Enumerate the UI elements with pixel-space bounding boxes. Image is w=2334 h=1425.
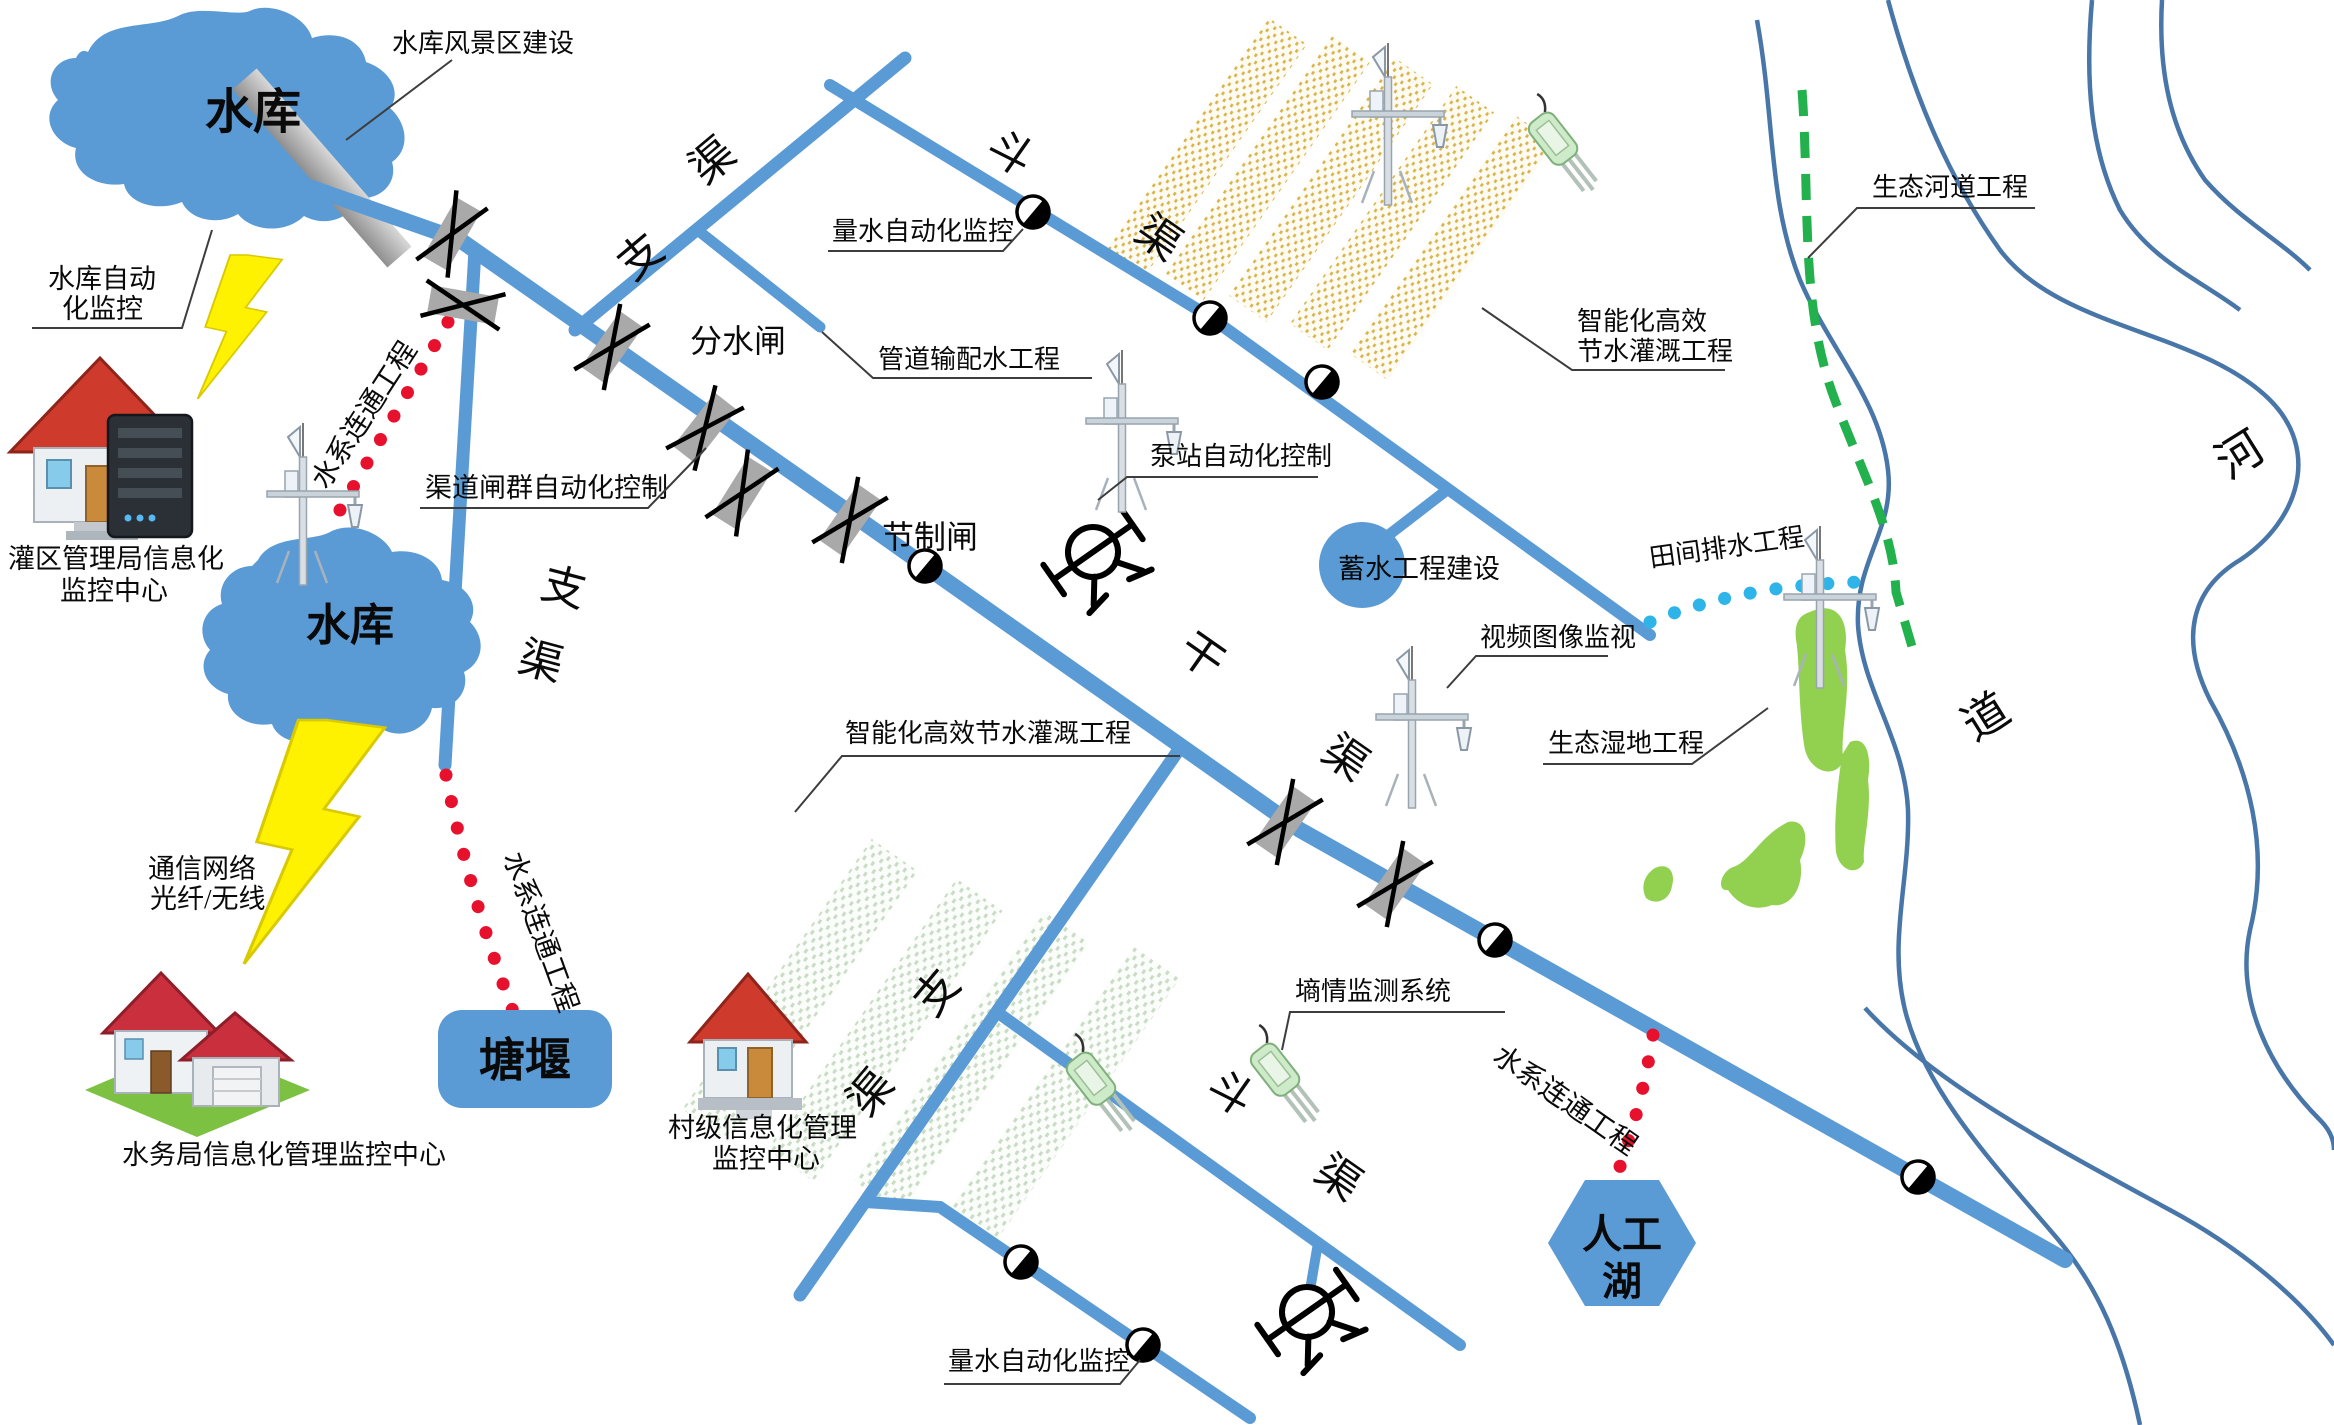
pipeline-label: 管道输配水工程 (878, 345, 1060, 374)
eco-river-label: 生态河道工程 (1872, 173, 2028, 202)
wireless-bolt-bottom (244, 720, 385, 964)
measure-label-2: 量水自动化监控 (948, 1347, 1130, 1376)
villa-roof-back (103, 973, 219, 1033)
wetland-patch-4 (1643, 866, 1673, 901)
server-led (137, 515, 144, 522)
measure-canal-bottom (865, 1202, 1250, 1418)
villa-garage-door (213, 1067, 261, 1106)
village-house-door (748, 1048, 772, 1098)
control-gate-label: 节制闸 (882, 519, 978, 555)
pump-auto-label: 泵站自动化控制 (1150, 442, 1332, 471)
dou2-char-qu: 渠 (1306, 1145, 1370, 1210)
measure-label-1: 量水自动化监控 (832, 217, 1014, 246)
server-slot (118, 428, 182, 438)
village-house-base (698, 1098, 802, 1110)
smart-irrigation-leader-2 (795, 756, 1180, 812)
bureau-house-window (47, 460, 71, 488)
gate-main-8 (1357, 841, 1432, 927)
server-slot (118, 468, 182, 478)
branch-left-char-zhi: 支 (536, 559, 591, 618)
wetland-patch-3 (1721, 822, 1805, 908)
water-affairs-villa (85, 973, 310, 1137)
pump-station-1 (1039, 504, 1160, 619)
pond-weir-label: 塘堰 (479, 1035, 571, 1086)
artificial-lake-label-2: 湖 (1602, 1259, 1642, 1304)
video-leader (1447, 656, 1608, 688)
bureau-label-1: 灌区管理局信息化 (8, 544, 224, 574)
river-tributary-2 (2161, 0, 2310, 270)
village-label-2: 监控中心 (712, 1144, 820, 1174)
scenic-label: 水库风景区建设 (392, 29, 574, 58)
network-label-1: 通信网络 (148, 854, 256, 884)
bureau-label-2: 监控中心 (60, 576, 168, 606)
water-affairs-label: 水务局信息化管理监控中心 (122, 1140, 446, 1170)
network-label-2: 光纤/无线 (150, 884, 266, 914)
gate-group-label: 渠道闸群自动化控制 (425, 473, 668, 503)
server-slot (118, 448, 182, 458)
connect-label-1: 水系连通工程 (305, 336, 423, 494)
dou2-char-dou: 斗 (1198, 1060, 1262, 1125)
river-tributary-1 (2089, 0, 2240, 310)
irrigation-district-diagram: 河 道 水库 水库 (0, 0, 2334, 1425)
moisture-leader (1282, 1012, 1505, 1050)
villa-door (151, 1051, 171, 1093)
server-led (149, 515, 156, 522)
smart-irrigation-label-1a: 智能化高效 (1577, 307, 1707, 336)
connect-label-2: 水系连通工程 (497, 848, 585, 1017)
server-led (125, 515, 132, 522)
reservoir-1-label: 水库 (205, 86, 301, 139)
gate-branch-left (420, 280, 505, 329)
telemetry-tower-video (1376, 646, 1471, 808)
connect-dots-2 (446, 775, 520, 1030)
branch-up-char-zhi: 支 (608, 224, 673, 290)
res-auto-label-1: 水库自动 (48, 264, 156, 294)
storage-project-label: 蓄水工程建设 (1338, 554, 1500, 584)
reservoir-2-label: 水库 (306, 601, 394, 650)
connect-label-3: 水系连通工程 (1487, 1039, 1643, 1162)
branch-up-char-qu: 渠 (680, 128, 745, 194)
video-label: 视频图像监视 (1480, 623, 1636, 652)
artificial-lake-label-1: 人工 (1582, 1212, 1662, 1257)
bureau-center (10, 358, 192, 540)
village-label-1: 村级信息化管理 (668, 1113, 857, 1143)
pump-auto-leader (1098, 477, 1318, 500)
river-char-he: 河 (2207, 421, 2273, 489)
storage-stub (1390, 490, 1447, 534)
smart-irrigation-label-2: 智能化高效节水灌溉工程 (845, 719, 1131, 748)
smart-irrigation-label-1b: 节水灌溉工程 (1577, 337, 1733, 366)
res-auto-label-2: 化监控 (62, 294, 143, 324)
pipeline-stub (700, 232, 820, 327)
village-house-window (718, 1048, 736, 1070)
field-drain-label: 田间排水工程 (1648, 522, 1807, 572)
river-char-dao: 道 (1953, 683, 2019, 751)
moisture-label: 墒情监测系统 (1295, 977, 1451, 1006)
telemetry-tower-pump (1086, 350, 1181, 512)
diversion-gate-label: 分水闸 (690, 323, 786, 359)
main-canal-char-qu: 渠 (1313, 725, 1377, 790)
villa-window (125, 1039, 143, 1059)
eco-wetland-label: 生态湿地工程 (1548, 729, 1704, 758)
wireless-bolt-top (198, 255, 282, 399)
smart-irrigation-field-top (1103, 18, 1554, 380)
pump2-stub (1310, 1243, 1318, 1290)
flowmeter-3 (1299, 359, 1344, 404)
server-slot (118, 488, 182, 498)
branch-left-char-qu: 渠 (513, 633, 568, 692)
main-canal-char-gan: 干 (1169, 623, 1233, 688)
